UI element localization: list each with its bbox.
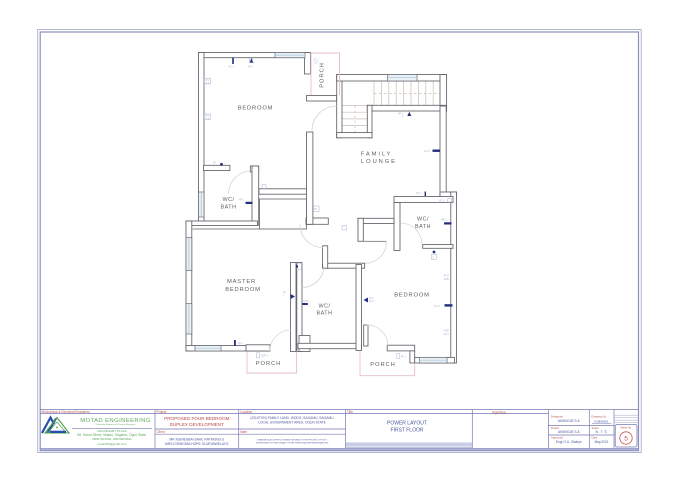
svg-text:FAMILY: FAMILY <box>361 151 393 157</box>
svg-text:4DB: 4DB <box>444 277 449 281</box>
svg-text:LOCAL GOVERNMENT AREA, OGUN ST: LOCAL GOVERNMENT AREA, OGUN STATE <box>258 421 326 425</box>
svg-text:SUPERVISED BY HIM OR ANY OF HI: SUPERVISED BY HIM OR ANY OF HIS PERSONAL… <box>256 441 329 444</box>
svg-text:ECA: ECA <box>205 82 210 85</box>
svg-text:N.T.S: N.T.S <box>596 430 608 434</box>
svg-text:DRAWINGS ACCEPTED IN RESPONSIB: DRAWINGS ACCEPTED IN RESPONSIBILITY FOR … <box>257 438 327 441</box>
svg-text:LOUNGE: LOUNGE <box>361 159 397 165</box>
svg-text:4P 4: 4P 4 <box>238 342 244 346</box>
svg-text:May,2021: May,2021 <box>595 440 609 444</box>
svg-text:Sign/Seal: Sign/Seal <box>492 410 506 414</box>
svg-text:WC/: WC/ <box>319 303 331 309</box>
svg-text:PORCH: PORCH <box>320 62 326 87</box>
svg-text:AKINSOJE S.A: AKINSOJE S.A <box>558 419 581 423</box>
svg-text:PORCH: PORCH <box>256 361 281 367</box>
svg-text:DUPLEX DEVELOPMENT: DUPLEX DEVELOPMENT <box>170 422 225 427</box>
svg-text:WC/: WC/ <box>223 197 235 203</box>
svg-text:4P 8: 4P 8 <box>444 274 450 278</box>
svg-text:Project: Project <box>157 410 167 414</box>
svg-text:Designed: Designed <box>551 415 563 419</box>
svg-text:BATH: BATH <box>415 224 431 230</box>
svg-text:AKINSOJE S.A: AKINSOJE S.A <box>558 430 581 434</box>
svg-text:2WP 1: 2WP 1 <box>261 354 269 358</box>
svg-text:Title: Title <box>347 410 353 414</box>
svg-text:FIRST FLOOR: FIRST FLOOR <box>391 428 424 434</box>
svg-text:Date: Date <box>592 435 598 439</box>
svg-text:01M00001: 01M00001 <box>594 419 609 423</box>
svg-text:PORCH: PORCH <box>370 362 395 368</box>
svg-text:motad5d@gmail.com: motad5d@gmail.com <box>97 442 127 446</box>
svg-text:BEDROOM: BEDROOM <box>225 287 261 293</box>
svg-text:Approved: Approved <box>551 435 563 439</box>
svg-text:AC 1: AC 1 <box>228 65 234 69</box>
svg-text:4P 2: 4P 2 <box>444 332 450 336</box>
svg-text:4P10: 4P10 <box>303 300 309 303</box>
svg-text:ECA: ECA <box>205 117 210 120</box>
svg-text:POWER LAYOUT: POWER LAYOUT <box>387 421 427 427</box>
svg-text:BATH: BATH <box>221 204 237 210</box>
svg-text:4P 2: 4P 2 <box>248 65 254 69</box>
svg-text:Client: Client <box>157 430 165 434</box>
svg-text:Location: Location <box>240 410 252 414</box>
svg-text:4P 2: 4P 2 <box>416 191 422 195</box>
svg-text:Engr O.A. Olaleye: Engr O.A. Olaleye <box>556 440 582 444</box>
svg-text:BATH: BATH <box>317 311 333 317</box>
svg-text:4P 9: 4P 9 <box>439 199 445 203</box>
svg-text:08057903584, 08033803891: 08057903584, 08033803891 <box>92 437 132 441</box>
svg-text:4DB: 4DB <box>444 329 449 333</box>
svg-text:4P 1: 4P 1 <box>401 355 407 359</box>
svg-text:MR IGENEGBA ISAAC RAYMOND &: MR IGENEGBA ISAAC RAYMOND & <box>170 437 225 441</box>
svg-text:MRS IGENEGBA HOPE OLUEVAWELAYO: MRS IGENEGBA HOPE OLUEVAWELAYO <box>165 442 229 446</box>
svg-text:BEDROOM: BEDROOM <box>394 292 430 298</box>
svg-text:4P11: 4P11 <box>441 218 447 222</box>
svg-text:4P 1: 4P 1 <box>239 198 245 202</box>
svg-text:AC 6: AC 6 <box>434 304 440 308</box>
svg-text:4P: 4P <box>213 162 216 165</box>
svg-text:4P 3: 4P 3 <box>369 300 375 303</box>
svg-text:(SOJITON) FAMILY LAND, ISODO,: (SOJITON) FAMILY LAND, ISODO, SAGAMU, SA… <box>250 416 334 420</box>
svg-text:Sheet No.: Sheet No. <box>620 426 632 430</box>
svg-text:S: S <box>432 255 434 259</box>
svg-text:AC 5: AC 5 <box>424 149 430 153</box>
svg-text:WC/: WC/ <box>417 217 429 223</box>
svg-text:5: 5 <box>624 435 628 442</box>
svg-text:3P: 3P <box>314 207 317 211</box>
svg-text:Mechanical & Electrical Engine: Mechanical & Electrical Engineers <box>42 410 91 414</box>
svg-text:MASTER: MASTER <box>227 279 256 285</box>
svg-text:BEDROOM: BEDROOM <box>238 106 274 112</box>
svg-text:Drawing No.: Drawing No. <box>592 415 608 419</box>
svg-text:PROPOSED FOUR BEDROOM: PROPOSED FOUR BEDROOM <box>164 416 230 421</box>
svg-text:Chartered Engineers & Project: Chartered Engineers & Project Managers <box>95 423 136 426</box>
svg-text:Note: Note <box>240 430 247 434</box>
